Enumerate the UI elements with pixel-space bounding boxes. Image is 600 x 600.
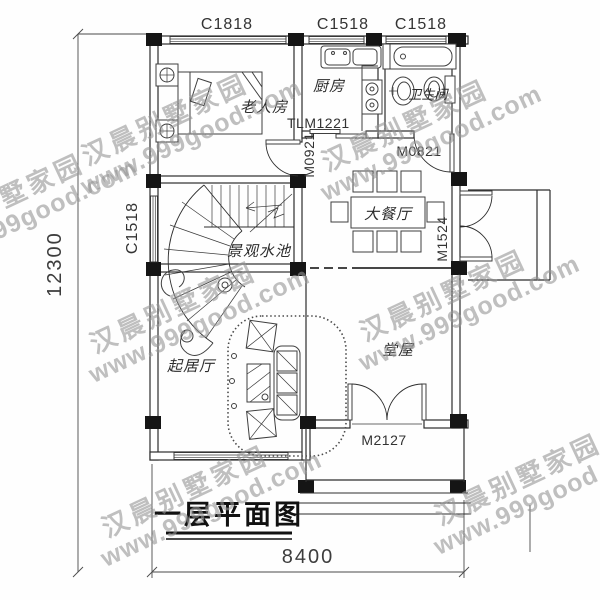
side-balcony — [468, 190, 550, 280]
dimension-depth-label: 12300 — [44, 231, 66, 297]
window-label-c1518-left: C1518 — [124, 202, 141, 254]
window-c1518-right — [386, 37, 446, 44]
window-label-c1518-middle: C1518 — [317, 16, 369, 33]
room-label-elder-bedroom: 老人房 — [240, 99, 289, 116]
room-label-water-feature: 景观水池 — [227, 243, 292, 260]
window-c1818 — [170, 37, 286, 44]
door-label-tlm1221: TLM1221 — [287, 115, 350, 131]
window-living-bottom — [174, 453, 288, 460]
window-label-c1818: C1818 — [201, 16, 253, 33]
bedroom-nightstand-bottom — [156, 120, 178, 142]
door-dining-m1524 — [460, 191, 492, 261]
bathtub — [383, 44, 456, 69]
bedroom-nightstand-top — [156, 64, 178, 86]
door-label-m2127: M2127 — [361, 432, 406, 448]
drawing-title: 一层平面图 — [154, 500, 304, 530]
window-c1518-left — [151, 196, 158, 262]
drawing-title-block: 一层平面图 — [154, 500, 304, 539]
door-label-m0821: M0821 — [396, 143, 441, 159]
living-room-sofa-group — [228, 316, 346, 456]
door-label-m0921: M0921 — [301, 132, 317, 177]
window-label-c1518-right: C1518 — [395, 16, 447, 33]
dimension-width-label: 8400 — [282, 546, 335, 568]
room-label-dining: 大餐厅 — [364, 206, 414, 223]
window-c1518-middle — [309, 37, 364, 44]
floor-plan-drawing: 12300 8400 — [0, 0, 600, 600]
door-label-m1524: M1524 — [434, 216, 450, 261]
door-entry-m2127 — [348, 384, 426, 424]
door-bedroom-m0921 — [266, 140, 300, 176]
room-label-bathroom: 卫生间 — [408, 87, 449, 102]
kitchen-sink — [321, 46, 381, 68]
room-label-main-hall: 堂屋 — [382, 342, 415, 359]
dimension-left: 12300 — [44, 29, 150, 577]
room-label-living: 起居厅 — [167, 358, 217, 375]
room-label-kitchen: 厨房 — [313, 78, 346, 95]
floor-plan-page: 12300 8400 — [0, 0, 600, 600]
